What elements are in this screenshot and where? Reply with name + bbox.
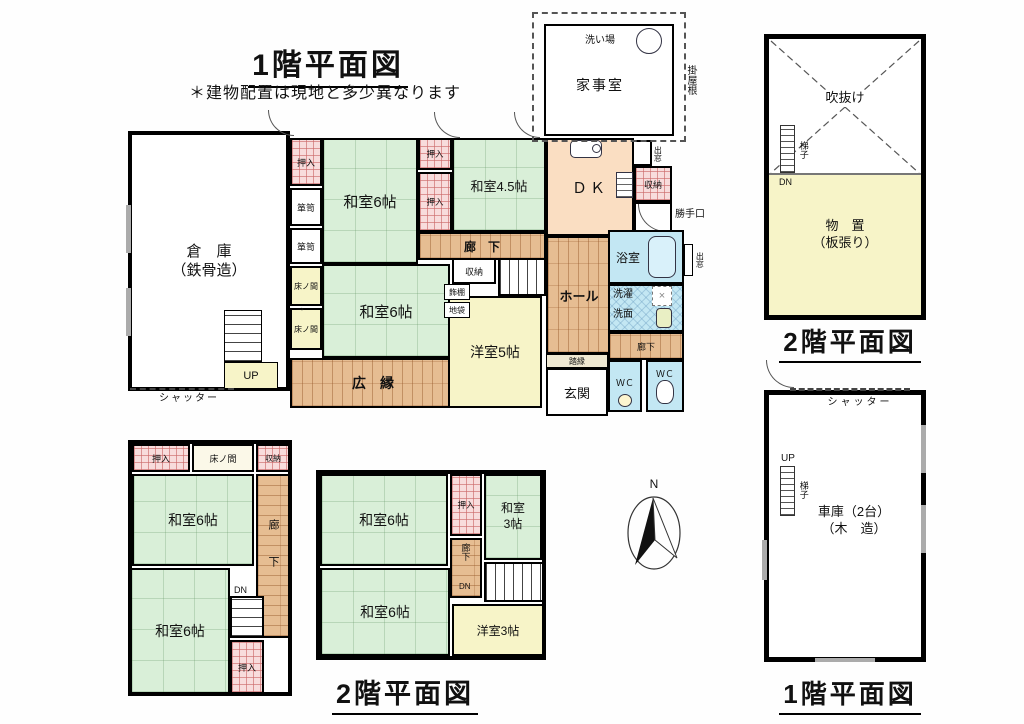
closet-shuunou: 収納 xyxy=(256,444,290,472)
corridor-label: 廊下 xyxy=(460,543,473,561)
veranda-hiroen: 広 縁 xyxy=(290,358,456,408)
entrance-step: 踏縁 xyxy=(546,354,608,368)
closet-label: 押入 xyxy=(426,148,443,160)
title-2f-house: 2階平面図 xyxy=(300,672,510,715)
closet-label: 収納 xyxy=(465,265,483,278)
toilet-icon xyxy=(618,394,632,407)
kazaridana-shelf: 飾棚 xyxy=(444,284,470,300)
shutter-line xyxy=(130,388,234,390)
compass: N xyxy=(615,470,705,580)
closet-oshiire: 押入 xyxy=(132,444,190,472)
room-washitsu6-2f: 和室6帖 xyxy=(132,474,254,566)
door-arc xyxy=(434,112,460,138)
hall-label: ホール xyxy=(559,286,598,305)
room-yoshitsu3: 洋室3帖 xyxy=(452,604,544,656)
window-mark xyxy=(921,425,926,473)
washtub-icon xyxy=(636,28,662,54)
room-washitsu3: 和室 3帖 xyxy=(484,474,542,560)
door-arc xyxy=(514,112,540,138)
closet-label: 押入 xyxy=(152,452,170,465)
dn-label: DN xyxy=(459,582,471,592)
room-label: 浴室 xyxy=(616,249,640,266)
stove xyxy=(616,172,633,198)
closet-oshiire: 押入 xyxy=(418,138,452,170)
bathtub xyxy=(648,236,676,278)
washplace-label: 洗い場 xyxy=(585,34,615,47)
bay-window-box xyxy=(684,244,693,276)
jibukuro-cabinet: 地袋 xyxy=(444,302,470,318)
ladder-label: 梯子 xyxy=(797,130,809,170)
step-label: 踏縁 xyxy=(569,356,585,367)
corridor-label: 廊 下 xyxy=(464,238,500,255)
room-washitsu6-mid: 和室6帖 xyxy=(322,264,450,358)
title-1f-main-text: 1階平面図 xyxy=(248,40,408,88)
laundry-label: 洗濯 xyxy=(613,288,633,301)
back-door-label: 勝手口 xyxy=(672,208,708,221)
room-label: ＤＫ xyxy=(572,177,608,198)
cabinet-label: 地袋 xyxy=(449,305,465,316)
warehouse-stairs xyxy=(224,310,262,362)
closet-oshiire: 押入 xyxy=(418,172,452,232)
title-2f-annex-text: 2階平面図 xyxy=(779,322,920,363)
room-label: 和室6帖 xyxy=(359,301,412,322)
room-label: 和室6帖 xyxy=(360,602,410,622)
toilet-icon xyxy=(656,380,674,404)
corridor-right: 廊下 xyxy=(608,332,684,360)
up-label: UP xyxy=(243,370,258,382)
corridor-label: 廊下 xyxy=(265,519,281,593)
closet-label: 押入 xyxy=(238,661,256,674)
note-text: ＊建物配置は現地と多少異なります xyxy=(150,84,500,105)
corridor-main: 廊 下 xyxy=(418,232,546,260)
kakeyane-label: 掛屋根 xyxy=(684,48,697,112)
closet-oshiire: 押入 xyxy=(290,138,322,186)
hall: ホール xyxy=(546,236,612,354)
title-1f-main: 1階平面図 xyxy=(228,40,428,88)
shelf-label: 飾棚 xyxy=(449,287,465,298)
room-label: 和室6帖 xyxy=(343,191,396,212)
tansu-label: 箪笥 xyxy=(297,201,315,214)
tokonoma-label: 床ノ間 xyxy=(294,324,318,335)
closet-label: 押入 xyxy=(426,196,443,208)
veranda-label: 広 縁 xyxy=(352,373,394,393)
room-label: 洋室3帖 xyxy=(477,622,520,639)
garage-label: 車庫（2台） （木 造） xyxy=(798,504,910,538)
washbasin-icon xyxy=(656,308,672,328)
room-label: 和室4.5帖 xyxy=(470,176,527,195)
floorplan-canvas: 1階平面図 ＊建物配置は現地と多少異なります 2階平面図 2階平面図 1階平面図… xyxy=(0,0,1024,724)
title-2f-house-text: 2階平面図 xyxy=(332,672,478,715)
title-2f-annex: 2階平面図 xyxy=(760,322,940,363)
room-label: 洋室5帖 xyxy=(470,342,520,362)
closet-oshiire: 押入 xyxy=(230,640,264,694)
sink-drain xyxy=(592,144,601,153)
washstand-label: 洗面 xyxy=(613,308,633,321)
tokonoma-2f: 床ノ間 xyxy=(192,444,254,472)
closet-label: 押入 xyxy=(457,499,474,511)
bay-window-label: 出窓 xyxy=(694,243,704,277)
dn-label: DN xyxy=(234,585,247,597)
tansu-2: 箪笥 xyxy=(290,228,322,264)
room-washitsu6-2f: 和室6帖 xyxy=(320,568,450,656)
shutter-line xyxy=(790,388,910,391)
stairs-2f xyxy=(230,596,264,638)
room-label: ＷＣ xyxy=(616,376,634,389)
room-washitsu6-2f: 和室6帖 xyxy=(320,474,448,566)
room-label: 和室6帖 xyxy=(359,510,409,530)
closet-shuunou: 収納 xyxy=(452,258,496,284)
washing-machine-icon: × xyxy=(652,286,672,306)
tansu-label: 箪笥 xyxy=(297,240,315,253)
room-warehouse-label: 倉 庫 （鉄骨造） xyxy=(171,242,246,281)
room-label: 和室6帖 xyxy=(155,621,205,641)
shutter-label: シャッター xyxy=(134,392,244,405)
room-label: 和室6帖 xyxy=(168,510,218,530)
closet-label: 収納 xyxy=(644,178,662,191)
dn-label: DN xyxy=(779,177,792,189)
tansu-1: 箪笥 xyxy=(290,188,322,226)
room-label: 和室 3帖 xyxy=(501,501,525,532)
bay-window-box xyxy=(632,140,652,166)
window-mark xyxy=(762,540,767,580)
window-mark xyxy=(126,205,131,253)
up-label: UP xyxy=(781,452,795,465)
window-mark xyxy=(921,505,926,553)
arrow-mark: → xyxy=(294,300,306,316)
shutter-label: シャッター xyxy=(800,396,920,409)
closet-shuunou: 収納 xyxy=(634,166,672,202)
closet-oshiire: 押入 xyxy=(450,474,482,536)
closet-label: 収納 xyxy=(265,453,281,464)
closet-label: 押入 xyxy=(297,156,315,169)
window-mark xyxy=(126,288,131,336)
window-mark xyxy=(815,658,875,662)
corridor-label: 廊下 xyxy=(637,340,655,353)
kajishitsu-label: 家事室 xyxy=(576,76,624,94)
room-washitsu6-top: 和室6帖 xyxy=(322,138,418,264)
compass-north-letter: N xyxy=(650,477,659,491)
room-washitsu45: 和室4.5帖 xyxy=(452,138,546,232)
door-arc xyxy=(766,360,794,388)
room-warehouse: 倉 庫 （鉄骨造） xyxy=(128,131,290,391)
warehouse-stairs-landing: UP xyxy=(224,362,278,389)
title-1f-garage-text: 1階平面図 xyxy=(779,674,920,715)
room-label: ＷＣ xyxy=(656,367,674,380)
ladder xyxy=(780,125,795,173)
main-stairs xyxy=(498,258,546,296)
title-1f-garage: 1階平面図 xyxy=(760,674,940,715)
room-genkan: 玄関 xyxy=(546,368,608,416)
void-label: 吹抜け xyxy=(790,90,900,107)
tokonoma-label: 床ノ間 xyxy=(294,281,318,292)
ladder xyxy=(780,466,795,516)
bay-window-label: 出窓 xyxy=(652,139,662,169)
tokonoma-label: 床ノ間 xyxy=(209,452,236,465)
stairs-2f-mid xyxy=(484,562,544,602)
room-washitsu6-2f: 和室6帖 xyxy=(130,568,230,694)
room-label: 玄関 xyxy=(564,383,590,402)
monooki-label: 物 置 （板張り） xyxy=(790,218,900,252)
